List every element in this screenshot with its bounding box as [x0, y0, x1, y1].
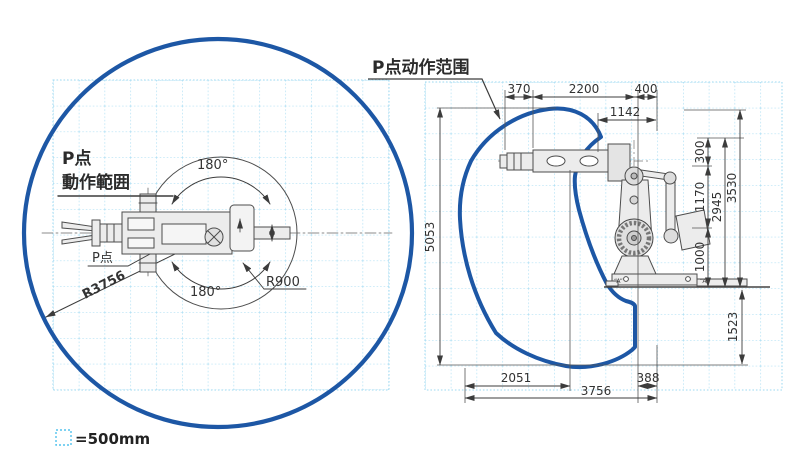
dim-3756: 3756 [581, 384, 612, 398]
base-column [614, 256, 656, 274]
arm-detail [162, 224, 206, 244]
dim-2945: 2945 [710, 192, 724, 223]
link-bottom-joint [664, 229, 678, 243]
elbow-joint-hub [631, 173, 637, 179]
boom-motor [507, 153, 533, 170]
dim-1170: 1170 [693, 182, 707, 213]
section-marker-a-right: “A” [700, 278, 709, 285]
left-title-line1: P点 [62, 148, 91, 169]
link-top-joint [664, 172, 676, 184]
legend-grid-square [56, 430, 71, 445]
left-title-line2: 動作範囲 [62, 172, 130, 193]
angle-180-bottom-label: 180° [190, 285, 221, 300]
legend-group: =500mm [56, 430, 150, 448]
arm-detail [128, 218, 154, 230]
base-bolt [686, 277, 691, 282]
section-marker-a-left: “A” [614, 278, 623, 285]
wrist-motor [100, 224, 122, 242]
dim-388: 388 [637, 371, 660, 385]
dim-1523: 1523 [726, 312, 740, 343]
boom-slot [580, 156, 598, 166]
dim-2200: 2200 [569, 82, 600, 96]
r900-label: R900 [266, 275, 300, 290]
base-bolt [624, 277, 629, 282]
mount-plate [230, 205, 254, 251]
boom-slot [547, 156, 565, 166]
robot-motion-range-diagram: P点 動作範囲 P点 R3756 180° 180° R900 P点动作范围 [0, 0, 785, 473]
p-point-label: P点 [92, 251, 113, 266]
diagram-canvas: P点 動作範囲 P点 R3756 180° 180° R900 P点动作范围 [0, 0, 785, 473]
dim-2051: 2051 [501, 371, 532, 385]
dim-300: 300 [693, 141, 707, 164]
arm-detail [128, 238, 154, 248]
gripper-hub [92, 220, 100, 246]
shoulder-center [632, 236, 637, 241]
dim-3530: 3530 [725, 173, 739, 204]
legend-label: =500mm [75, 430, 150, 448]
dim-370: 370 [508, 82, 531, 96]
dim-5053: 5053 [423, 222, 437, 253]
angle-180-top-label: 180° [197, 158, 228, 173]
dim-400: 400 [635, 82, 658, 96]
dim-1142: 1142 [610, 105, 641, 119]
arm-motor-dot [630, 196, 638, 204]
link-vertical [666, 180, 675, 234]
boom-end-cap [500, 155, 507, 168]
right-grid [425, 82, 782, 390]
dim-1000: 1000 [693, 242, 707, 273]
right-title: P点动作范围 [372, 57, 469, 78]
